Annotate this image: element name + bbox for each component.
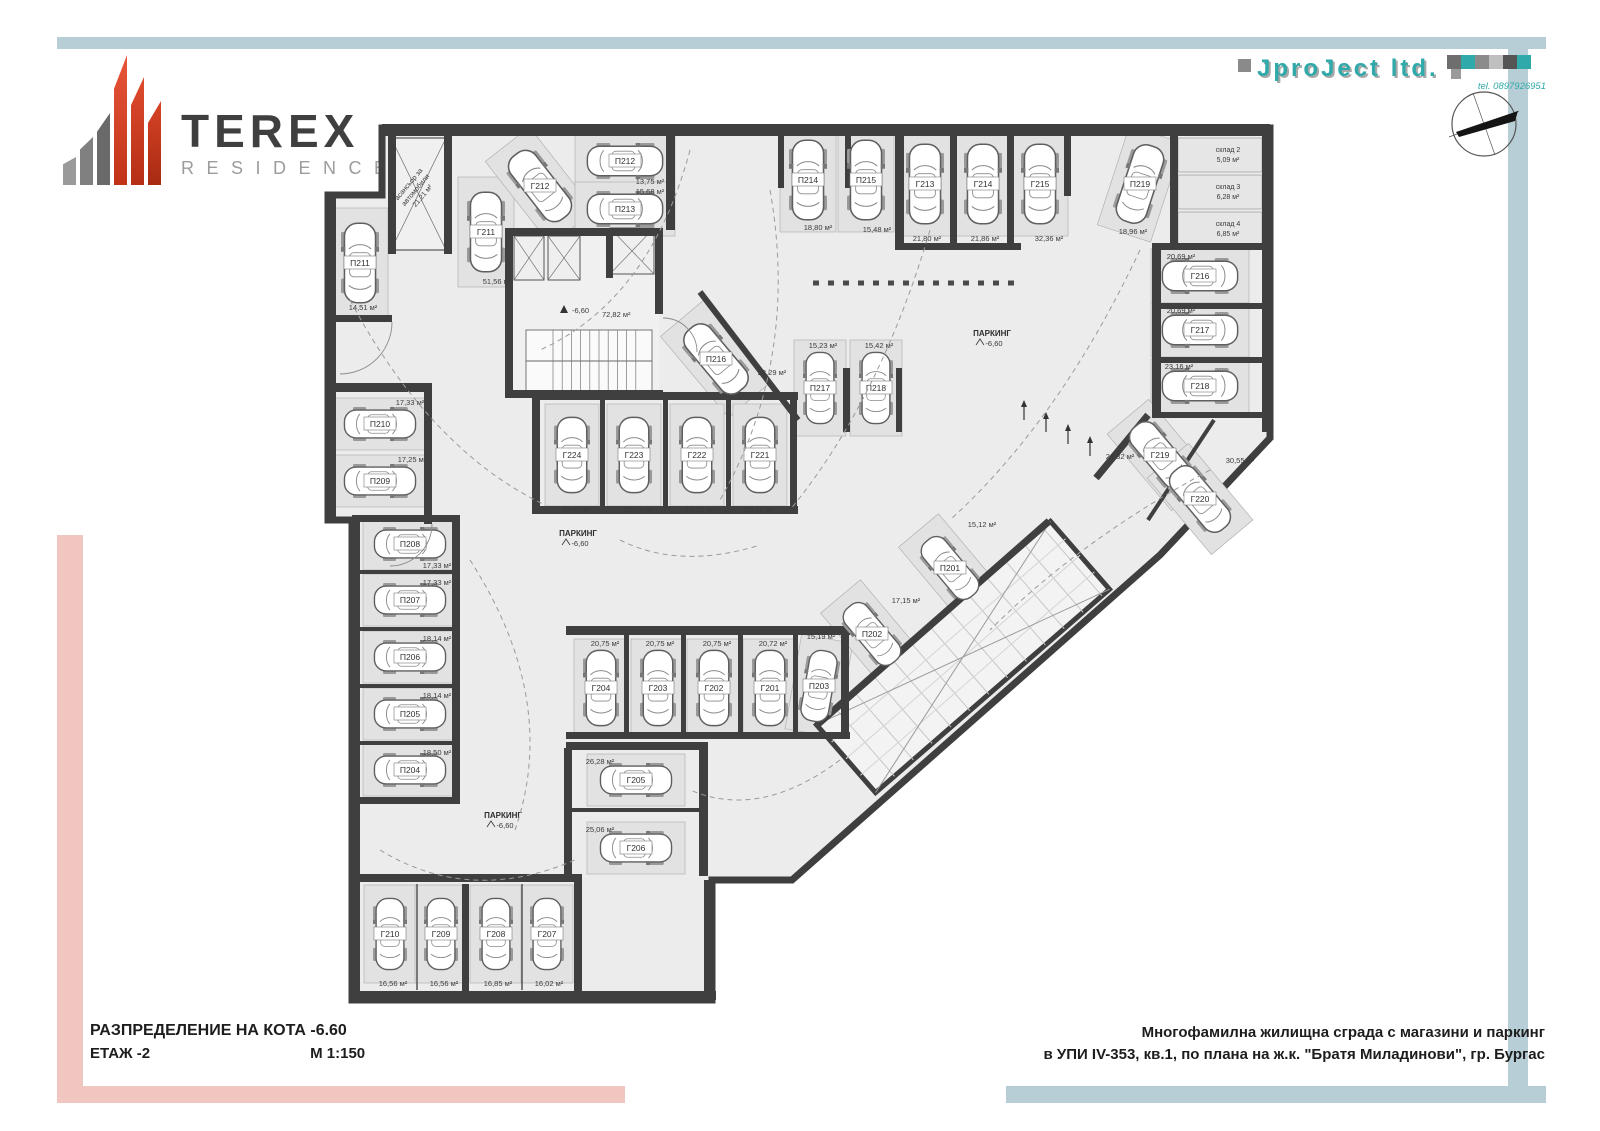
spot-label-Г212: Г212	[531, 181, 550, 191]
wall	[328, 195, 336, 522]
wall	[352, 570, 456, 574]
spot-label-Г208: Г208	[487, 929, 506, 939]
spot-label-П202: П202	[862, 629, 883, 639]
storage-room	[1178, 175, 1262, 209]
wall	[1007, 136, 1014, 246]
spot-label-Г213: Г213	[916, 179, 935, 189]
parking-label: ПАРКИНГ	[559, 529, 597, 538]
spot-area: 20,69 м²	[1167, 306, 1196, 315]
spot-label-П203: П203	[809, 681, 830, 691]
spot-label-Г220: Г220	[1191, 494, 1210, 504]
spot-label-Г214: Г214	[974, 179, 993, 189]
spot-label-П213: П213	[615, 204, 636, 214]
spot-area: 14,51 м²	[349, 303, 378, 312]
spot-label-Г224: Г224	[563, 450, 582, 460]
floor-plan: П211Г211Г212П212П213П214П215Г213Г214Г215…	[0, 0, 1600, 1131]
wall	[624, 633, 629, 733]
room-label: склад 4	[1216, 221, 1241, 228]
wall	[505, 390, 663, 398]
spot-label-Г211: Г211	[477, 227, 495, 237]
room-area: 6,28 м²	[1217, 194, 1240, 201]
room-label: склад 3	[1216, 184, 1241, 191]
wall	[328, 383, 432, 392]
spot-label-Г202: Г202	[705, 683, 724, 693]
wall	[1152, 246, 1161, 418]
spot-area: 15,19 м²	[807, 632, 836, 641]
wall	[896, 368, 902, 432]
wall	[352, 515, 460, 522]
spot-label-П210: П210	[370, 419, 391, 429]
parking-label: ПАРКИНГ	[484, 811, 522, 820]
spot-label-Г215: Г215	[1031, 179, 1050, 189]
storage-room	[1178, 138, 1262, 172]
wall	[352, 741, 456, 745]
room-label: склад 2	[1216, 147, 1241, 154]
wall	[606, 228, 613, 278]
spot-label-П217: П217	[810, 383, 831, 393]
level-label: -6,60	[496, 821, 513, 830]
spot-area: 30,55 м²	[1226, 456, 1255, 465]
spot-area: 16,02 м²	[535, 979, 564, 988]
wall	[655, 228, 663, 314]
spot-label-Г209: Г209	[432, 929, 451, 939]
spot-area: 18,80 м²	[804, 223, 833, 232]
spot-label-Г201: Г201	[761, 683, 780, 693]
spot-label-П209: П209	[370, 476, 391, 486]
wall	[950, 136, 957, 246]
spot-area: 17,33 м²	[423, 561, 452, 570]
wall	[778, 136, 784, 188]
wall	[843, 368, 850, 432]
spot-label-Г223: Г223	[625, 450, 644, 460]
wall	[1064, 136, 1071, 196]
wall	[903, 243, 1021, 250]
spot-area: 16,56 м²	[379, 979, 408, 988]
spot-area: 20,75 м²	[646, 639, 675, 648]
wall	[895, 136, 904, 250]
spot-area: 51,56 м²	[483, 277, 512, 286]
spot-area: 17,25 м²	[398, 455, 427, 464]
wall	[666, 136, 675, 230]
lobby-level: -6,60	[572, 306, 589, 315]
spot-label-П219: П219	[1130, 179, 1151, 189]
spot-label-П204: П204	[400, 765, 421, 775]
spot-label-Г206: Г206	[627, 843, 646, 853]
spot-label-Г222: Г222	[688, 450, 707, 460]
spot-area: 23,16 м²	[1165, 362, 1194, 371]
spot-label-Г221: Г221	[751, 450, 770, 460]
project-block: Многофамилна жилищна сграда с магазини и…	[1005, 1022, 1545, 1066]
wall	[566, 732, 850, 739]
spot-area: 21,86 м²	[971, 234, 1000, 243]
wall	[726, 398, 731, 508]
wall	[444, 136, 452, 254]
spot-label-П215: П215	[856, 175, 877, 185]
wall	[352, 797, 460, 804]
wall	[352, 684, 456, 688]
level-label: -6,60	[571, 539, 588, 548]
spot-label-Г205: Г205	[627, 775, 646, 785]
storage-room	[1178, 212, 1262, 246]
drawing-title: РАЗПРЕДЕЛЕНИЕ НА КОТА -6.60	[90, 1022, 365, 1040]
wall	[352, 627, 456, 631]
spot-label-П205: П205	[400, 709, 421, 719]
spot-area: 28,29 м²	[758, 368, 787, 377]
spot-area: 23,31 м²	[686, 505, 715, 514]
spot-area: 26,28 м²	[586, 757, 615, 766]
lobby-area: 72,82 м²	[602, 310, 631, 319]
wall	[352, 991, 716, 1000]
spot-area: 20,69 м²	[1167, 252, 1196, 261]
wall	[566, 742, 708, 750]
spot-label-П208: П208	[400, 539, 421, 549]
spot-area: 18,50 м²	[423, 748, 452, 757]
spot-label-Г217: Г217	[1191, 325, 1210, 335]
wall	[1262, 136, 1271, 432]
room-area: 6,85 м²	[1217, 231, 1240, 238]
spot-label-Г207: Г207	[538, 929, 557, 939]
spot-area: 21,32 м²	[1106, 452, 1135, 461]
wall	[663, 398, 668, 508]
spot-area: 17,15 м²	[892, 596, 921, 605]
parking-label: ПАРКИНГ	[973, 329, 1011, 338]
wall	[462, 884, 469, 992]
scale-label: М 1:150	[310, 1045, 365, 1062]
wall	[738, 633, 743, 733]
wall	[1152, 412, 1264, 418]
spot-area: 15,68 м²	[636, 187, 665, 196]
wall	[352, 522, 360, 1000]
title-block: РАЗПРЕДЕЛЕНИЕ НА КОТА -6.60 ЕТАЖ -2 М 1:…	[90, 1022, 365, 1062]
project-line1: Многофамилна жилищна сграда с магазини и…	[1005, 1022, 1545, 1044]
wall	[793, 633, 798, 733]
spot-label-Г203: Г203	[649, 683, 668, 693]
spot-label-П214: П214	[798, 175, 819, 185]
spot-area: 15,12 м²	[968, 520, 997, 529]
spot-area: 24,47 м²	[563, 505, 592, 514]
wall	[566, 808, 700, 812]
wall	[1152, 243, 1264, 250]
spot-area: 23,32 м²	[745, 505, 774, 514]
spot-area: 18,14 м²	[423, 691, 452, 700]
spot-label-П206: П206	[400, 652, 421, 662]
project-line2: в УПИ IV-353, кв.1, по плана на ж.к. "Бр…	[1005, 1044, 1545, 1066]
wall	[841, 626, 849, 736]
spot-label-П201: П201	[940, 563, 961, 573]
wall	[1170, 136, 1178, 246]
spot-area: 16,56 м²	[430, 979, 459, 988]
spot-label-Г204: Г204	[592, 683, 611, 693]
spot-area: 13,75 м²	[636, 177, 665, 186]
spot-area: 15,23 м²	[809, 341, 838, 350]
spot-label-Г219: Г219	[1151, 450, 1170, 460]
spot-label-П211: П211	[350, 258, 370, 268]
spot-area: 20,72 м²	[759, 639, 788, 648]
spot-label-П216: П216	[706, 354, 727, 364]
spot-area: 21,80 м²	[913, 234, 942, 243]
wall	[452, 517, 460, 803]
wall	[505, 228, 663, 236]
spot-area: 20,75 м²	[703, 639, 732, 648]
spot-area: 17,33 м²	[423, 578, 452, 587]
wall	[505, 228, 513, 398]
spot-area: 15,48 м²	[863, 225, 892, 234]
wall	[382, 124, 1270, 136]
wall	[600, 398, 605, 508]
wall	[704, 880, 713, 995]
spot-label-П218: П218	[866, 383, 887, 393]
spot-label-П207: П207	[400, 595, 421, 605]
spot-area: 18,96 м²	[1119, 227, 1148, 236]
spot-area: 32,36 м²	[1035, 234, 1064, 243]
spot-label-П212: П212	[615, 156, 636, 166]
wall	[681, 633, 686, 733]
drawing-sheet: { "logo": { "title": "TEREX", "subtitle"…	[0, 0, 1600, 1131]
wall	[532, 392, 540, 514]
spot-label-Г218: Г218	[1191, 381, 1210, 391]
spot-area: 18,14 м²	[423, 634, 452, 643]
spot-area: 23,50 м²	[625, 505, 654, 514]
spot-label-Г210: Г210	[381, 929, 400, 939]
wall	[699, 748, 708, 876]
spot-area: 16,85 м²	[484, 979, 513, 988]
spot-area: 20,75 м²	[591, 639, 620, 648]
wall	[352, 874, 582, 882]
room-area: 5,09 м²	[1217, 157, 1240, 164]
wall	[574, 882, 582, 994]
spot-label-Г216: Г216	[1191, 271, 1210, 281]
spot-area: 25,06 м²	[586, 825, 615, 834]
floor-label: ЕТАЖ -2	[90, 1045, 150, 1062]
level-label: -6,60	[985, 339, 1002, 348]
